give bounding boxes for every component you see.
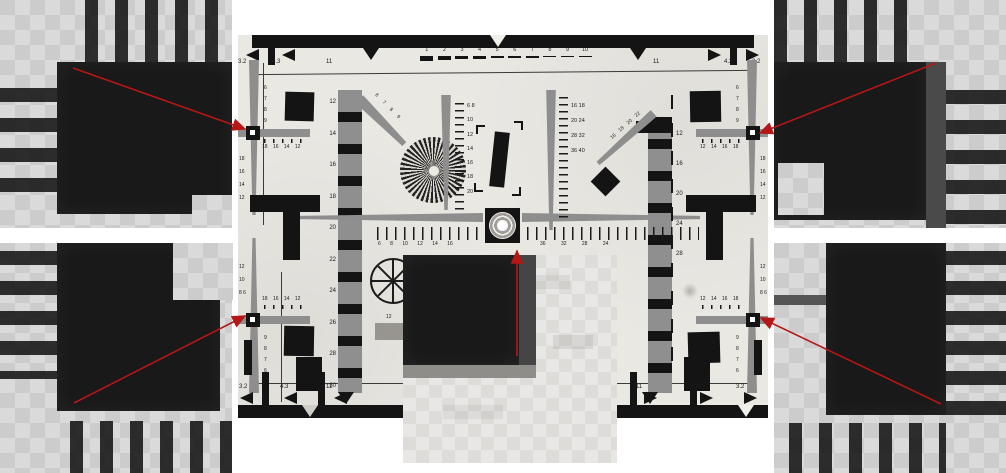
horizontal-ticks-left <box>377 227 483 240</box>
cross-tl-vertical-labels: 6 7 8 9 <box>264 83 269 127</box>
pixel-stripes-horizontal <box>946 251 1006 419</box>
black-square-top-left <box>285 92 315 122</box>
pixel-stripes-horizontal <box>946 90 1006 228</box>
cross-tr-side-labels: 18 16 14 12 <box>760 153 768 205</box>
figure-canvas: 3.2 4.3 11 11 4.3 3.2 1 2 3 4 5 6 7 8 9 … <box>0 0 1006 473</box>
scale-number: 6 <box>513 48 516 54</box>
top-frame-notch <box>490 35 506 47</box>
bullseye-center-dot <box>498 221 507 230</box>
pixel-dark-square <box>57 62 232 214</box>
scale-bar <box>526 56 539 58</box>
t-shape-right-stem <box>706 212 723 260</box>
scale-cell: 9 <box>559 48 577 64</box>
wheel-number-label: 12 <box>386 315 392 320</box>
scale-number: 2 <box>443 48 446 54</box>
pixel-dark-square <box>403 255 519 365</box>
grayscale-column-right <box>648 117 672 393</box>
bottom-right-arrow-2 <box>700 392 713 404</box>
top-left-arrow-1 <box>246 49 259 61</box>
bottom-right-arrow-1 <box>644 392 657 404</box>
cross-tl-ticks <box>264 139 304 143</box>
pixel-stripes-vertical <box>774 0 924 62</box>
bottom-vbar-2 <box>318 372 325 405</box>
cross-bl-horizontal-labels: 18 16 14 12 <box>262 297 300 302</box>
t-shape-left-bar <box>250 195 320 212</box>
frame-label: 4.3 <box>724 59 732 65</box>
bottom-vbar-1 <box>262 372 269 405</box>
zoom-inset-bottom-left <box>0 243 232 473</box>
cross-tl-horizontal-labels: 18 16 14 12 <box>262 145 300 150</box>
pixel-shade-3 <box>553 335 593 349</box>
gray-patch <box>375 323 403 340</box>
grayscale-left-labels: 12 14 16 18 20 22 24 26 28 30 <box>322 87 336 402</box>
frame-label: 4.3 <box>280 384 288 390</box>
t-shape-right-bar <box>686 195 756 212</box>
scale-number: 8 <box>548 48 551 54</box>
cross-br-ticks <box>702 305 742 309</box>
cross-tr-horizontal-labels: 12 14 16 18 <box>700 145 738 150</box>
scale-bar <box>438 56 451 60</box>
mark-center <box>750 130 755 135</box>
cross-br-vertical-labels: 9 8 7 6 <box>736 333 741 377</box>
bracket-bottom-left <box>474 183 483 192</box>
scale-bar <box>543 56 556 58</box>
bottom-right-arrow-3 <box>744 392 757 404</box>
cross-br-mark <box>746 313 760 327</box>
dashed-vertical-line <box>671 95 673 375</box>
black-diamond <box>591 167 621 197</box>
zoom-inset-bottom-right <box>774 243 1006 473</box>
scale-cell: 1 <box>418 48 436 64</box>
pixel-stripes-vertical <box>85 0 232 64</box>
horizontal-ticks-right <box>527 227 699 240</box>
cross-tr-vertical-labels: 6 7 8 9 <box>736 83 741 127</box>
pixel-light-patch <box>778 163 824 215</box>
grayscale-right-labels: 12 16 20 24 28 <box>676 119 690 269</box>
cross-tl-mark <box>246 126 260 140</box>
zoom-inset-center <box>403 255 617 463</box>
scale-number: 1 <box>425 48 428 54</box>
scale-bar <box>508 56 521 58</box>
pixel-stripes-horizontal <box>0 88 57 206</box>
cross-bl-ticks <box>264 305 304 309</box>
scale-cell: 5 <box>488 48 506 64</box>
bottom-left-arrow-2 <box>284 392 297 404</box>
scale-cell: 7 <box>524 48 542 64</box>
grayscale-column-left <box>338 90 362 393</box>
cross-tr-ticks <box>702 139 742 143</box>
pixel-stripes-vertical <box>70 421 232 473</box>
bottom-bar-notch-1 <box>302 405 318 417</box>
pixel-shade-2 <box>443 405 503 419</box>
cross-br-horizontal-labels: 12 14 16 18 <box>700 297 738 302</box>
frame-label: 3.2 <box>238 59 246 65</box>
right-scale-labels: 16 18 20 24 28 32 36 40 <box>571 99 585 159</box>
scale-cell: 4 <box>471 48 489 64</box>
scale-bar <box>579 56 592 57</box>
frame-label: 3.2 <box>239 384 247 390</box>
scale-bar <box>561 56 574 57</box>
bracket-top-left <box>476 125 485 134</box>
black-square-top-right <box>690 91 722 123</box>
mark-center <box>250 317 255 322</box>
horizontal-scale-right-labels: 36 32 28 24 <box>540 242 608 247</box>
pixel-shade-1 <box>536 275 570 289</box>
bottom-left-arrow-1 <box>240 392 253 404</box>
scale-bar <box>455 56 468 60</box>
scale-number: 4 <box>478 48 481 54</box>
horizontal-wedge-right <box>522 213 700 222</box>
black-square-bottom-left <box>284 326 315 357</box>
bar-bottom-right <box>754 340 762 375</box>
tilted-bar <box>489 131 510 187</box>
frame-label: 4.3 <box>272 59 280 65</box>
zoom-inset-top-left <box>0 0 232 228</box>
mark-center <box>250 130 255 135</box>
top-triangle-right <box>630 48 646 60</box>
scale-cell: 6 <box>506 48 524 64</box>
scale-bar <box>491 56 504 59</box>
top-right-arrow-1 <box>708 49 721 61</box>
pixel-gray-fringe-right <box>519 255 536 365</box>
pixel-gray-fringe-bottom <box>403 365 536 378</box>
right-vertical-wedge <box>545 90 557 230</box>
scale-number: 9 <box>566 48 569 54</box>
scale-bar <box>473 56 486 59</box>
scale-cell: 3 <box>453 48 471 64</box>
right-scale-ticks <box>559 97 568 219</box>
center-bullseye-mark <box>485 208 520 243</box>
frame-label: 11 <box>653 59 659 65</box>
pixel-gray-fringe <box>926 62 946 228</box>
bottom-left-arrow-3 <box>334 392 347 404</box>
pixel-light-patch <box>192 195 232 228</box>
scale-number: 7 <box>531 48 534 54</box>
cross-br-side-labels: 12 10 8 6 <box>760 261 768 300</box>
top-number-scale: 1 2 3 4 5 6 7 8 9 10 <box>418 48 594 64</box>
center-scale-ticks <box>455 103 464 213</box>
bracket-top-right <box>514 121 523 130</box>
mark-center <box>750 317 755 322</box>
frame-label: 11 <box>326 384 332 390</box>
cross-bl-vertical-labels: 9 8 7 6 <box>264 333 269 377</box>
scale-number: 10 <box>582 48 588 54</box>
smudge-dot <box>682 283 698 299</box>
top-left-arrow-2 <box>282 49 295 61</box>
cross-bl-mark <box>246 313 260 327</box>
t-shape-left-stem <box>283 212 300 260</box>
frame-label: 11 <box>326 59 332 65</box>
top-triangle-left <box>363 48 379 60</box>
scale-cell: 10 <box>576 48 594 64</box>
horizontal-scale-left-labels: 6 8 10 12 14 16 <box>378 242 453 247</box>
cross-tr-mark <box>746 126 760 140</box>
cross-bl-side-labels: 12 10 8 6 <box>239 261 247 300</box>
bracket-bottom-right <box>512 187 521 196</box>
star-center-dot <box>428 165 440 177</box>
scale-number: 3 <box>460 48 463 54</box>
scale-bar <box>420 56 433 61</box>
pixel-light-patch <box>173 243 233 300</box>
frame-label: 4.3 <box>696 384 704 390</box>
pixel-stripes-vertical <box>789 423 946 473</box>
scale-cell: 2 <box>436 48 454 64</box>
pixel-dark-square <box>826 243 946 415</box>
pixel-gray-bar <box>774 295 826 305</box>
scale-number: 5 <box>496 48 499 54</box>
scale-cell: 8 <box>541 48 559 64</box>
frame-label: 11 <box>636 384 642 390</box>
cross-tl-side-labels: 18 16 14 12 <box>239 153 247 205</box>
bar-bottom-left <box>244 340 252 375</box>
frame-label: 3.2 <box>736 384 744 390</box>
frame-line-top <box>254 70 750 75</box>
bottom-bar-notch-3 <box>738 405 754 417</box>
zoom-inset-top-right <box>774 0 1006 228</box>
pixel-stripes-horizontal <box>0 251 57 379</box>
